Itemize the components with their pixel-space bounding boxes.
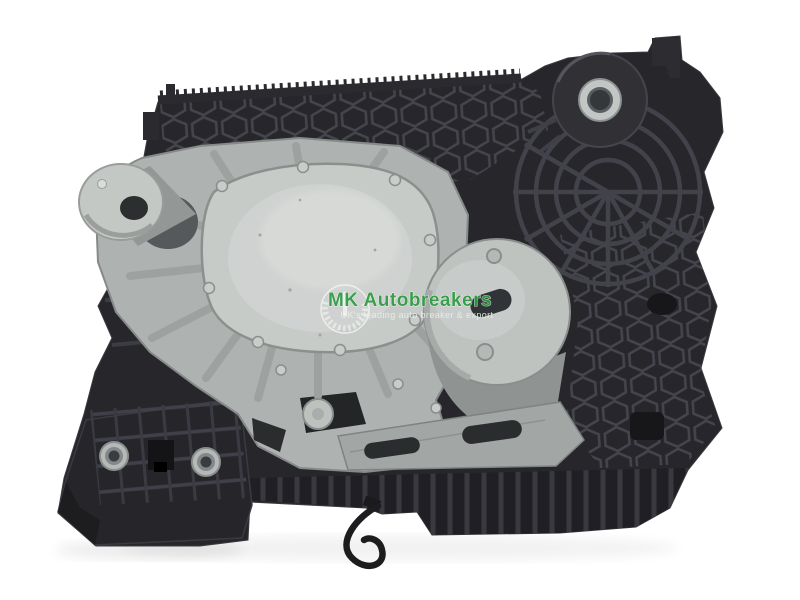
mounting-foot — [58, 398, 252, 545]
metal-bushing-foot-right — [192, 448, 220, 476]
watermark-tagline-text: UK's leading auto breaker & export — [341, 310, 494, 320]
auto-part-illustration: MK Autobreakers UK's leading auto breake… — [0, 0, 800, 600]
metal-bushing-foot-left — [100, 442, 128, 470]
product-photo: MK Autobreakers UK's leading auto breake… — [0, 0, 800, 600]
watermark-brand-text: MK Autobreakers — [328, 290, 492, 311]
pivot-boss-bore — [120, 196, 148, 220]
bottom-band-ribs — [250, 468, 688, 535]
